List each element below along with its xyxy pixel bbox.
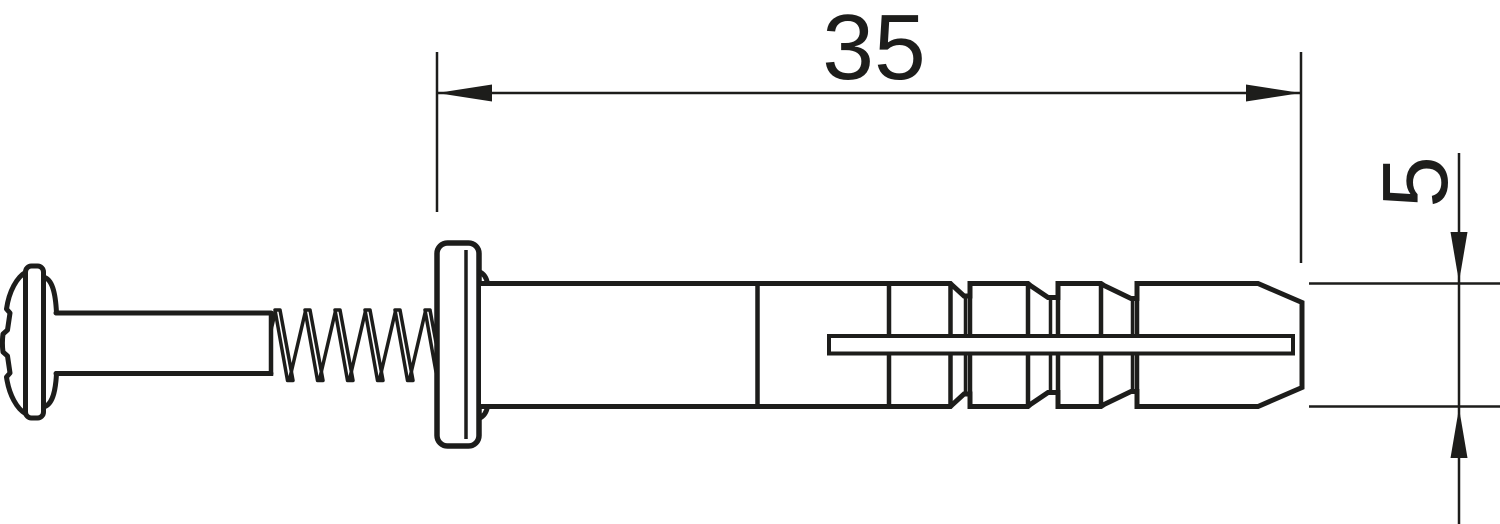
anchor-collar: [437, 243, 488, 446]
anchor-technical-drawing: 35 5: [0, 0, 1500, 524]
screw-head-rim: [26, 266, 44, 418]
diameter-dimension-value: 5: [1363, 156, 1467, 208]
length-dimension-value: 35: [822, 0, 925, 99]
thread-turn: [350, 310, 384, 381]
thread-turn: [320, 310, 354, 381]
dimension-length: 35: [437, 0, 1301, 263]
dimension-diameter: 5: [1309, 153, 1500, 524]
screw-head: [2, 266, 56, 418]
thread-turn: [380, 310, 414, 381]
screw-thread: [260, 310, 444, 381]
arrowhead-down: [1451, 232, 1468, 282]
arrowhead-left: [437, 85, 492, 102]
screw-shank: [56, 311, 271, 376]
screw-head-dome: [2, 272, 26, 414]
collar-outline: [437, 243, 479, 446]
expansion-slot: [829, 336, 1293, 354]
thread-turn: [260, 310, 294, 381]
drawing-canvas: 35 5: [0, 0, 1500, 524]
arrowhead-up: [1451, 408, 1468, 458]
anchor-body: [481, 284, 1302, 407]
arrowhead-right: [1246, 85, 1301, 102]
thread-turn: [290, 310, 324, 381]
